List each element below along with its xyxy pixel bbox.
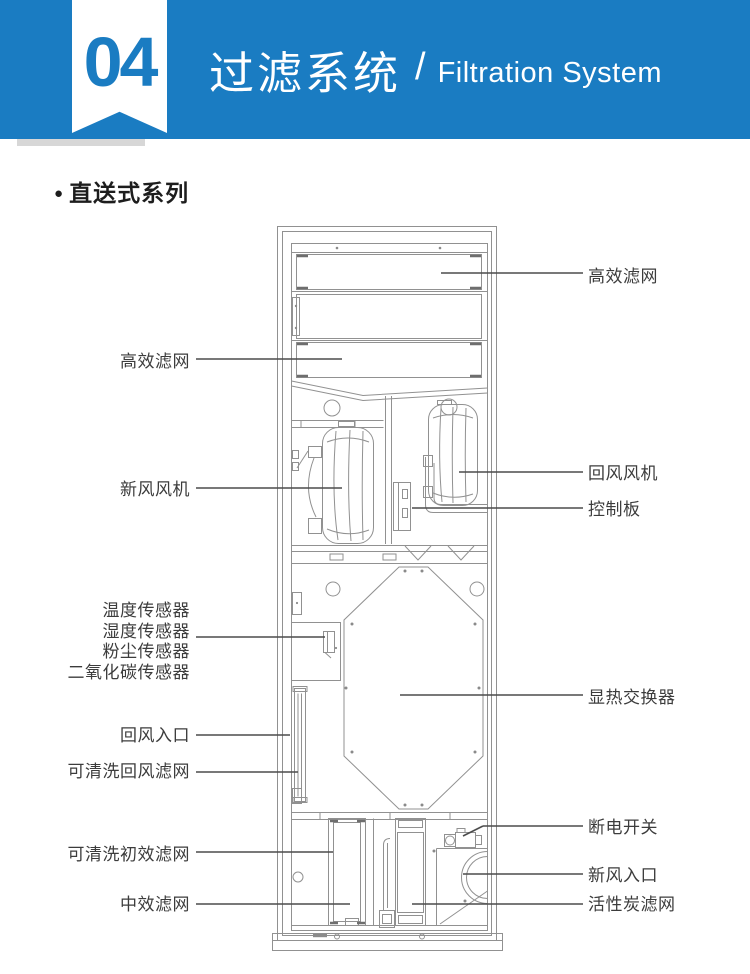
control-board	[394, 483, 411, 531]
label-sensor-humidity: 湿度传感器	[68, 622, 191, 643]
label-sensor-block: 温度传感器 湿度传感器 粉尘传感器 二氧化碳传感器	[68, 601, 191, 683]
heat-exchanger-core	[326, 567, 484, 809]
label-fresh-air-fan: 新风风机	[120, 480, 190, 500]
sensor-bracket	[292, 593, 341, 804]
fresh-air-scroll	[437, 849, 488, 926]
label-washable-primary-filter: 可清洗初效滤网	[68, 845, 191, 865]
power-switch	[445, 829, 482, 848]
label-sensor-dust: 粉尘传感器	[68, 642, 191, 663]
label-hepa-filter-right: 高效滤网	[588, 267, 658, 287]
label-medium-filter: 中效滤网	[120, 895, 190, 915]
label-power-switch: 断电开关	[588, 818, 658, 838]
label-control-board: 控制板	[588, 500, 641, 520]
rivet-dots	[295, 247, 481, 938]
label-sensor-temperature: 温度传感器	[68, 601, 191, 622]
fan-section	[292, 396, 458, 544]
return-air-slot	[293, 687, 307, 803]
label-hepa-filter-left: 高效滤网	[120, 352, 190, 372]
label-carbon-filter: 活性炭滤网	[588, 895, 676, 915]
leader-lines	[196, 273, 583, 904]
mid-divider	[292, 546, 488, 564]
base-plinth	[273, 934, 503, 951]
label-heat-exchanger: 显热交换器	[588, 688, 676, 708]
drawing-lines	[273, 227, 503, 951]
primary-filter-cassette	[293, 819, 366, 926]
cabinet-frame	[278, 227, 497, 941]
brochure-page: 过滤系统 / Filtration System 04 ●直送式系列	[0, 0, 750, 974]
label-fresh-air-inlet: 新风入口	[588, 866, 658, 886]
label-return-air-fan: 回风风机	[588, 464, 658, 484]
center-strip	[374, 819, 395, 928]
leader-power-switch-diagonal	[463, 826, 483, 836]
label-washable-return-filter: 可清洗回风滤网	[68, 762, 191, 782]
corner-ticks	[297, 256, 481, 923]
return-air-fan	[424, 401, 488, 513]
lower-rail	[292, 813, 488, 820]
slanted-deck	[292, 381, 488, 401]
fresh-air-fan	[297, 422, 374, 544]
label-return-air-inlet: 回风入口	[120, 726, 190, 746]
carbon-filter-cassette	[396, 819, 426, 926]
label-sensor-co2: 二氧化碳传感器	[68, 663, 191, 684]
